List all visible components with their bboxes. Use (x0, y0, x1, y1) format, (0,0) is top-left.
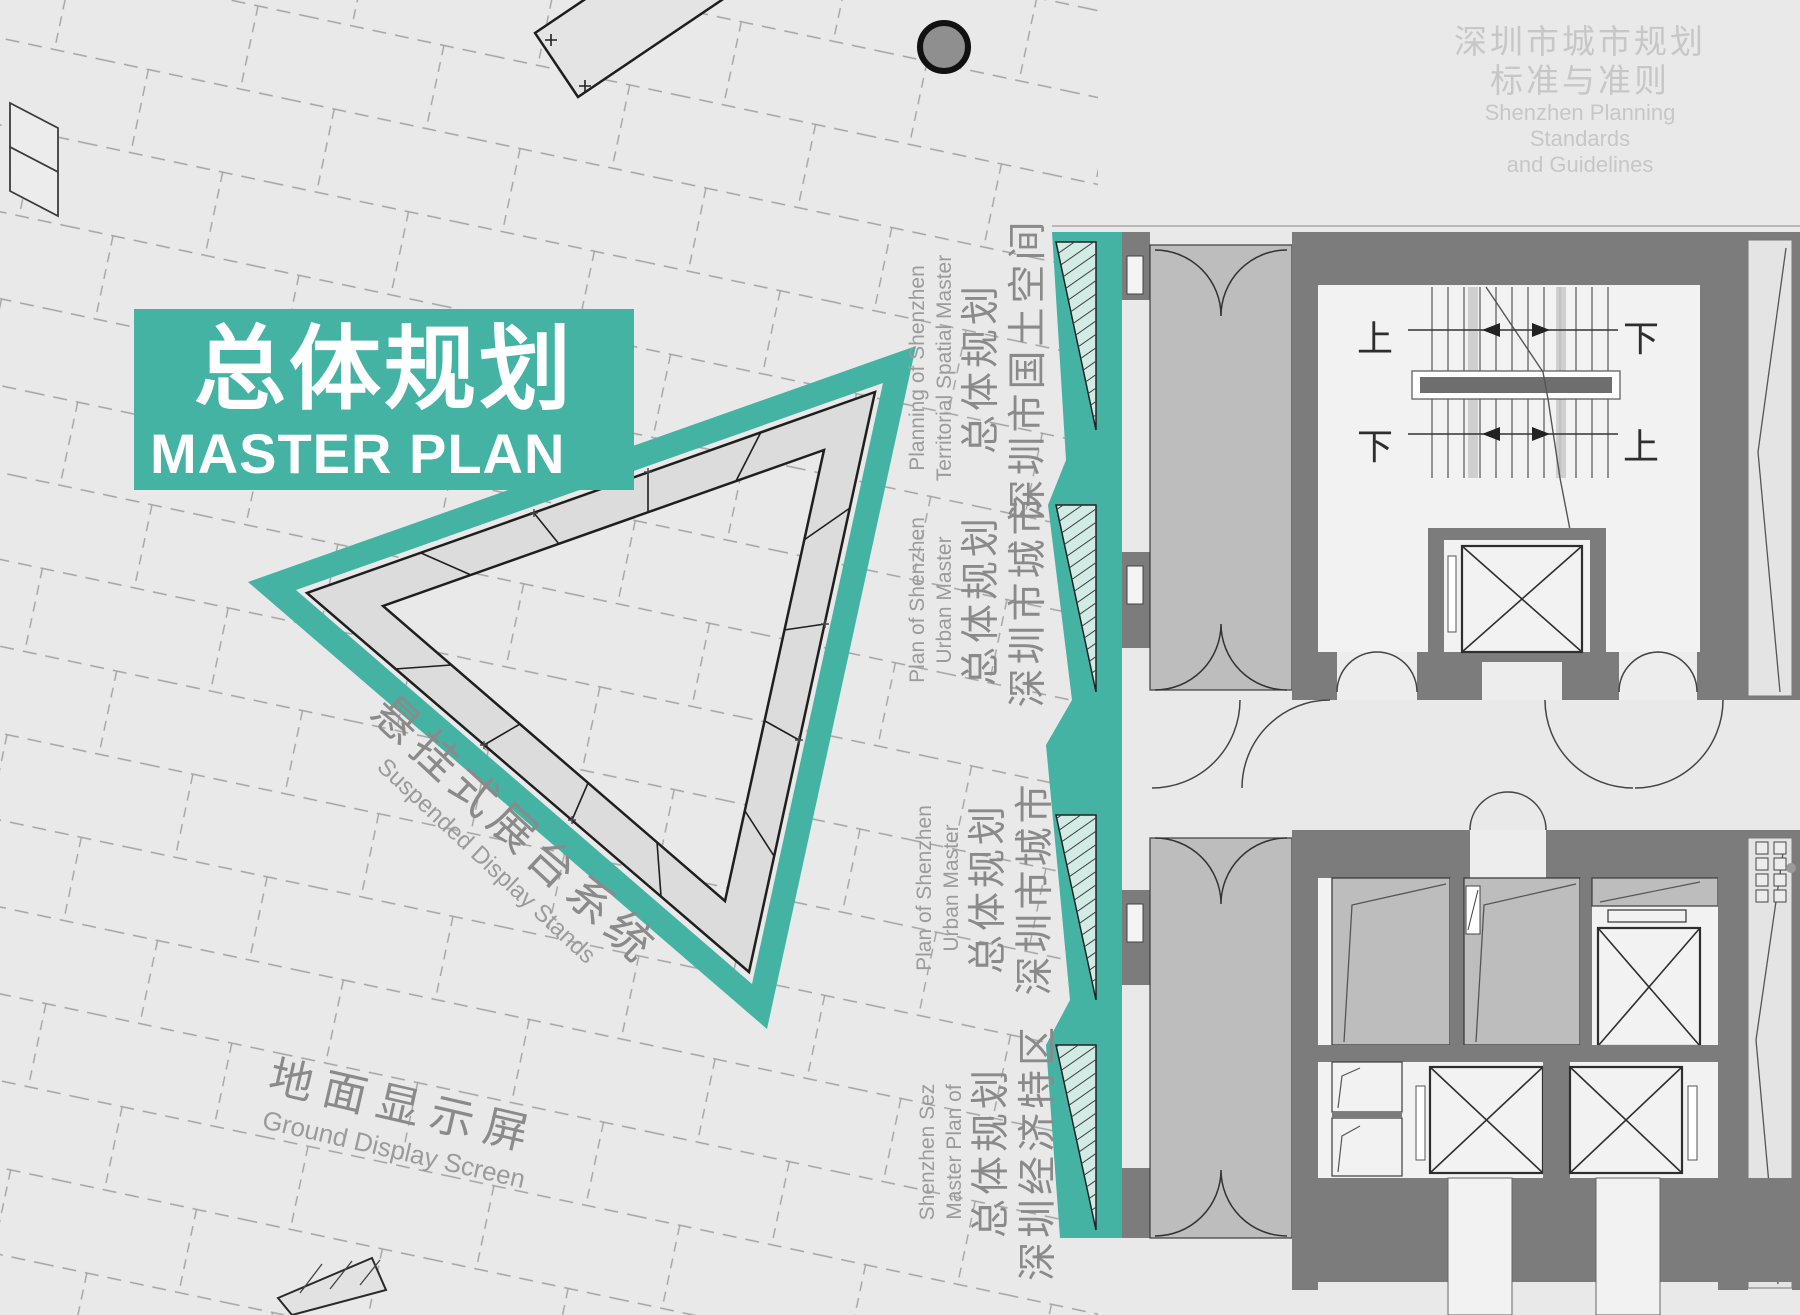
stair-up-label-left: 上 (1357, 310, 1393, 362)
stair-down-label-left: 下 (1357, 418, 1393, 470)
wall-label-urban-master-2: Plan of Shenzhen Urban Master 总体规划 深圳市城市 (910, 763, 1060, 1013)
stair-up-label-right: 上 (1623, 418, 1659, 470)
document-title-en-2: Standards (1370, 126, 1790, 152)
document-title-note: 深圳市城市规划 标准与准则 Shenzhen Planning Standard… (1370, 22, 1790, 178)
section-title-cn: 总体规划 (134, 315, 634, 425)
wall-label-sez-master: Shenzhen Sez Master Plan of 总体规划 深圳经济特区 (913, 1012, 1063, 1292)
corridor-strips (1150, 245, 1292, 1238)
document-title-cn-2: 标准与准则 (1370, 61, 1790, 100)
section-title-banner: 总体规划 MASTER PLAN (134, 309, 634, 490)
section-title-en: MASTER PLAN (134, 425, 634, 483)
column-marker-circle (920, 23, 968, 71)
wall-label-urban-master-1: Plan of Shenzhen Urban Master 总体规划 深圳市城市 (903, 475, 1053, 725)
cross-corridor-doors (1152, 700, 1723, 830)
stair-down-label-right: 下 (1623, 310, 1659, 362)
bottom-core (1292, 830, 1800, 1315)
band-wall-stubs (1122, 232, 1150, 1238)
document-title-cn-1: 深圳市城市规划 (1370, 22, 1790, 61)
document-title-en-3: and Guidelines (1370, 152, 1790, 178)
top-core-elevator (1428, 528, 1606, 662)
document-title-en-1: Shenzhen Planning (1370, 100, 1790, 126)
exhibition-plan-page: 总体规划 MASTER PLAN 深圳市城市规划 标准与准则 Shenzhen … (0, 0, 1800, 1315)
